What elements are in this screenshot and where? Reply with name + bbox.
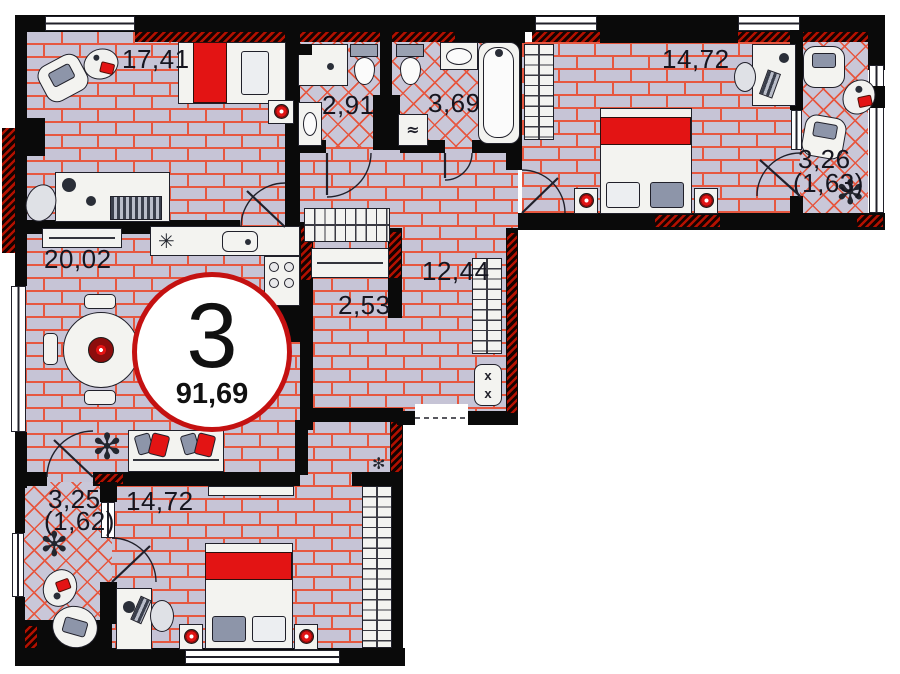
room-area-coef-label: (1,62) xyxy=(44,508,115,534)
shaft xyxy=(373,95,400,150)
floor-plan: 17,41 ✳ ✻ 20,02 3 91,69 2,91 xyxy=(0,0,900,674)
bathtub xyxy=(478,42,520,144)
lamp xyxy=(299,629,314,644)
load-bearing-wall-hatch xyxy=(857,215,883,227)
table-decor-dot xyxy=(93,54,100,61)
bed-blanket xyxy=(193,42,227,103)
seat-cushion xyxy=(812,53,836,68)
pillow xyxy=(606,182,640,208)
lamp xyxy=(184,629,199,644)
stove-burner xyxy=(269,278,279,288)
unit-badge: 3 91,69 xyxy=(132,272,292,432)
wardrobe xyxy=(524,44,554,140)
lamp xyxy=(274,104,289,119)
room-area-label: 2,91 xyxy=(322,92,375,118)
shelf-line xyxy=(49,237,115,239)
room-area-label: 14,72 xyxy=(662,46,730,72)
room-area-label: 17,41 xyxy=(122,46,190,72)
wall xyxy=(352,472,403,486)
window xyxy=(535,16,597,31)
stove-burner xyxy=(269,262,279,272)
load-bearing-wall-hatch xyxy=(655,215,720,227)
desk-books xyxy=(759,69,781,98)
sink xyxy=(440,42,478,70)
wall xyxy=(15,15,27,125)
pillow xyxy=(650,182,684,208)
bed-blanket xyxy=(205,552,292,580)
load-bearing-wall-hatch xyxy=(391,417,402,475)
dining-chair xyxy=(84,294,116,309)
bathtub-basin xyxy=(483,47,514,138)
table-decor xyxy=(55,578,72,593)
sink xyxy=(298,102,322,146)
room-area-label: 14,72 xyxy=(126,488,194,514)
wall xyxy=(15,156,27,286)
washing-machine-icon: ≈ xyxy=(406,122,419,138)
lamp xyxy=(579,193,594,208)
window xyxy=(185,650,340,664)
desk-item xyxy=(779,53,789,63)
office-chair xyxy=(734,62,756,92)
hob-icon: ✳ xyxy=(158,231,175,251)
wall xyxy=(600,30,738,43)
shower-head xyxy=(298,44,312,55)
seat-cushion xyxy=(812,121,838,140)
wall xyxy=(790,196,803,215)
plant-icon: ✻ xyxy=(92,430,122,466)
sink-basin xyxy=(303,112,317,136)
coat-rack xyxy=(304,208,390,242)
desk-item xyxy=(86,196,96,206)
table-plate xyxy=(88,337,114,363)
wall xyxy=(868,15,885,70)
toilet-tank xyxy=(350,44,378,57)
stove-burner xyxy=(284,262,294,272)
sofa-seam xyxy=(133,459,219,461)
window xyxy=(738,16,800,31)
table-decor xyxy=(857,95,873,109)
wall xyxy=(313,408,403,422)
office-chair xyxy=(150,600,174,632)
toilet-tank xyxy=(396,44,424,57)
desk-lamp xyxy=(62,178,76,192)
load-bearing-wall-hatch xyxy=(389,232,401,278)
table-decor-dot xyxy=(53,592,62,601)
dining-chair xyxy=(43,333,58,365)
wall xyxy=(295,420,308,475)
shelf-line xyxy=(317,262,384,264)
pillow xyxy=(212,616,246,642)
wall xyxy=(15,118,45,156)
wall xyxy=(15,488,25,533)
seat-cushion xyxy=(47,63,76,88)
rooms-count: 3 xyxy=(186,295,237,378)
total-area: 91,69 xyxy=(176,380,249,409)
wardrobe xyxy=(362,486,392,648)
wall xyxy=(100,482,117,502)
wall xyxy=(100,582,117,624)
storage-shelf xyxy=(311,248,389,278)
desk-books xyxy=(130,596,152,625)
bathtub-tap xyxy=(495,49,503,57)
table-decor-dot xyxy=(855,85,863,93)
desk xyxy=(752,44,796,106)
exterior-area xyxy=(403,425,518,674)
room-area-label: 20,02 xyxy=(44,246,112,272)
bed-blanket xyxy=(600,117,691,145)
tv-console xyxy=(208,486,294,496)
wall xyxy=(22,472,47,486)
room-area-coef-label: (1,63) xyxy=(793,170,864,196)
wall xyxy=(93,472,300,486)
electric-panel: x x xyxy=(474,364,502,406)
room-area-label: 3,69 xyxy=(428,90,481,116)
window xyxy=(11,286,26,432)
lamp xyxy=(699,193,714,208)
desk xyxy=(116,588,152,650)
stove-burner xyxy=(284,278,294,288)
room-area-label: 12,44 xyxy=(422,258,490,284)
dining-chair xyxy=(84,390,116,405)
kitchen-sink xyxy=(222,231,258,252)
pillow xyxy=(241,51,269,95)
table-decor xyxy=(99,61,115,75)
exterior-area xyxy=(518,230,900,674)
load-bearing-wall-hatch xyxy=(507,233,517,413)
washing-machine: ≈ xyxy=(398,114,428,146)
seat-cushion xyxy=(61,616,88,638)
pillow xyxy=(252,616,286,642)
entrance-opening xyxy=(415,404,468,426)
single-bed xyxy=(178,42,286,104)
window xyxy=(12,533,24,597)
book-stack xyxy=(110,196,162,220)
plant-icon: ✻ xyxy=(372,456,385,472)
window xyxy=(45,16,135,31)
load-bearing-wall-hatch xyxy=(2,128,15,253)
shower-drain xyxy=(327,63,334,70)
sink-basin xyxy=(446,48,472,65)
room-area-label: 2,53 xyxy=(338,292,391,318)
armchair xyxy=(803,46,845,88)
electric-panel-mark: x xyxy=(484,367,491,385)
sink-drain xyxy=(245,239,251,245)
electric-panel-mark: x xyxy=(484,385,491,403)
